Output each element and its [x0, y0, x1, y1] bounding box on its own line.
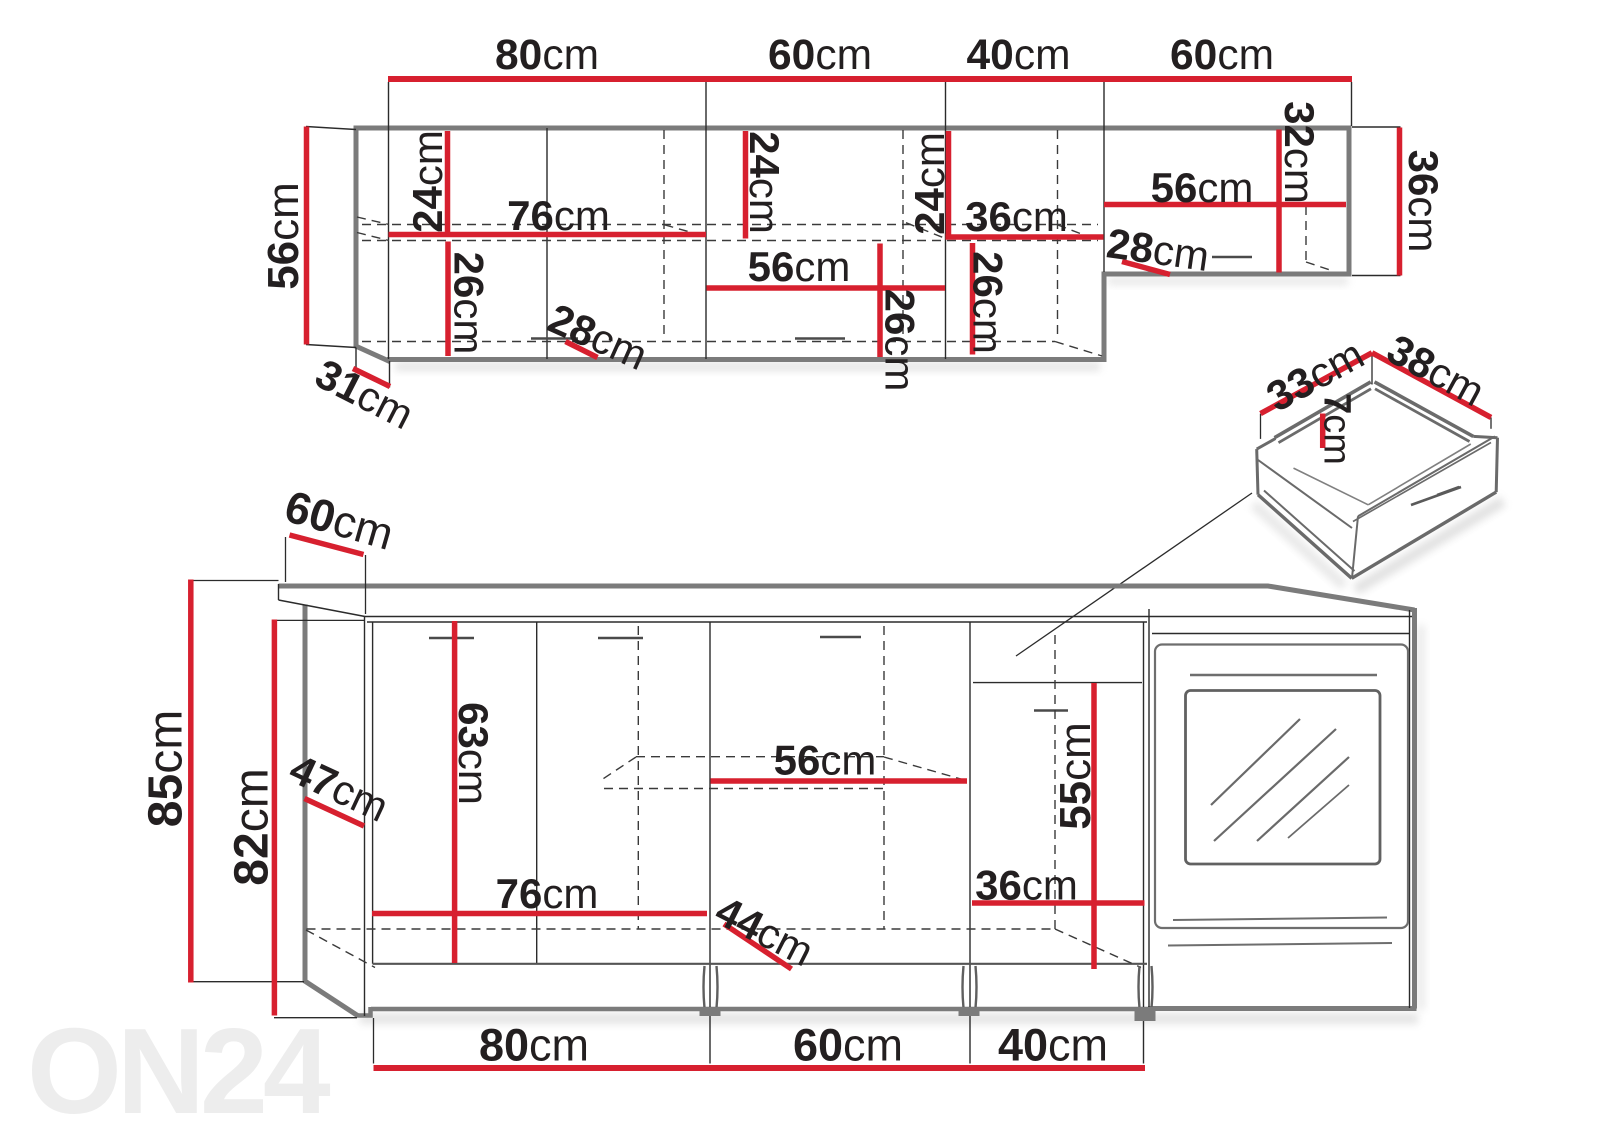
svg-text:40cm: 40cm: [967, 32, 1071, 79]
svg-text:82cm: 82cm: [226, 768, 279, 885]
svg-text:60cm: 60cm: [1170, 32, 1274, 79]
svg-text:26cm: 26cm: [446, 252, 493, 355]
svg-text:32cm: 32cm: [1276, 101, 1323, 204]
svg-text:36cm: 36cm: [1400, 150, 1447, 253]
svg-text:36cm: 36cm: [965, 193, 1068, 240]
svg-text:24cm: 24cm: [741, 131, 788, 234]
svg-text:26cm: 26cm: [877, 289, 924, 392]
svg-text:55cm: 55cm: [1051, 722, 1100, 830]
svg-text:56cm: 56cm: [748, 243, 851, 290]
svg-text:56cm: 56cm: [259, 182, 308, 290]
svg-text:60cm: 60cm: [793, 1020, 903, 1071]
svg-text:80cm: 80cm: [495, 32, 599, 79]
svg-text:26cm: 26cm: [965, 251, 1012, 354]
svg-text:60cm: 60cm: [768, 32, 872, 79]
svg-text:63cm: 63cm: [450, 702, 497, 805]
svg-text:76cm: 76cm: [496, 870, 599, 917]
svg-text:40cm: 40cm: [998, 1020, 1108, 1071]
svg-text:7cm: 7cm: [1316, 393, 1358, 465]
svg-text:36cm: 36cm: [975, 862, 1078, 909]
svg-text:24cm: 24cm: [906, 132, 953, 235]
svg-text:76cm: 76cm: [507, 192, 610, 239]
svg-text:ON24: ON24: [27, 1003, 331, 1139]
svg-text:56cm: 56cm: [1151, 164, 1254, 211]
svg-text:85cm: 85cm: [140, 710, 193, 827]
svg-text:80cm: 80cm: [479, 1020, 589, 1071]
svg-text:56cm: 56cm: [774, 737, 877, 784]
svg-text:24cm: 24cm: [404, 130, 451, 233]
